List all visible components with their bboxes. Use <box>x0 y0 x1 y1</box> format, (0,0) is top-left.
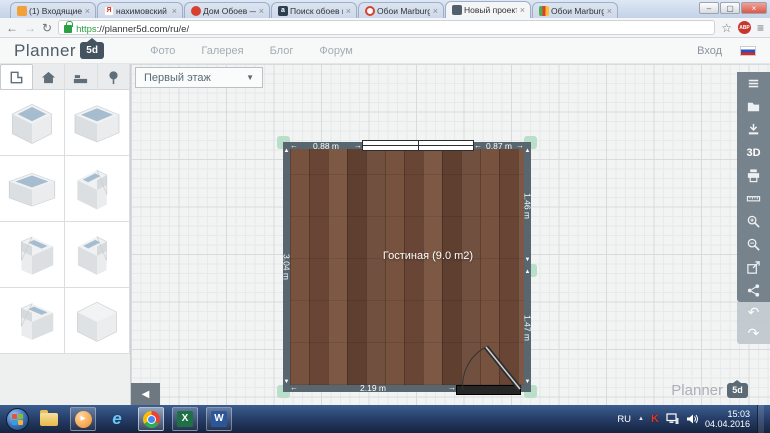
reload-icon[interactable]: ↻ <box>42 19 52 37</box>
minimize-button[interactable]: – <box>699 2 719 14</box>
hamburger-icon <box>746 76 761 91</box>
tab-close-icon[interactable]: × <box>84 6 91 16</box>
dim-value: 2.19 m <box>360 383 386 393</box>
redo-button[interactable]: ↷ <box>737 323 770 344</box>
url-text: ://planner5d.com/ru/e/ <box>97 24 189 35</box>
dim-value: 1.46 m <box>523 193 533 219</box>
planner5d-logo[interactable]: Planner 5d <box>14 41 104 61</box>
pin-favicon-icon <box>191 6 201 16</box>
browser-menu-icon[interactable]: ≡ <box>757 19 764 37</box>
bed-icon <box>72 69 89 86</box>
nav-blog[interactable]: Блог <box>270 45 294 57</box>
door-swing-arc <box>453 342 525 394</box>
right-toolbar: 3D <box>737 72 770 344</box>
l-room-thumb-icon <box>3 231 61 279</box>
dim-arrow-icon: ▼ <box>525 380 531 385</box>
fullscreen-button[interactable] <box>737 256 770 279</box>
url-scheme: https <box>76 24 97 35</box>
planner-favicon-icon <box>452 5 462 15</box>
volume-icon[interactable] <box>686 413 698 425</box>
kaspersky-icon[interactable]: K <box>651 413 659 425</box>
zoom-in-button[interactable] <box>737 210 770 233</box>
nav-photo[interactable]: Фото <box>150 45 175 57</box>
shape-l-room-notch-right[interactable] <box>65 156 130 222</box>
dim-value: 3.04 m <box>282 254 292 280</box>
start-button[interactable] <box>6 408 29 431</box>
chrome-icon <box>143 411 160 428</box>
tab-title: Поиск обоев по кра <box>290 6 343 16</box>
logo-badge-icon: 5d <box>80 42 104 59</box>
tab-close-icon[interactable]: × <box>171 6 178 16</box>
save-button[interactable] <box>737 118 770 141</box>
measure-button[interactable] <box>737 187 770 210</box>
zoom-in-icon <box>746 214 761 229</box>
room-plan-icon <box>8 69 25 86</box>
back-icon[interactable]: ← <box>6 19 18 37</box>
browser-tab-mail[interactable]: (1) Входящие - cheh × <box>10 2 96 18</box>
window-element[interactable] <box>362 140 474 151</box>
rectangle-room-thumb-icon <box>67 100 127 146</box>
tab-construction[interactable] <box>33 64 66 90</box>
language-indicator[interactable]: RU <box>617 414 631 425</box>
watermark-text: Planner <box>671 382 723 399</box>
dimension-top-right: ← 0.87 m → <box>474 141 524 151</box>
browser-tab-planner-active[interactable]: Новый проект - Pla × <box>445 1 531 18</box>
tab-furniture[interactable] <box>65 64 98 90</box>
dim-arrow-icon: ← <box>474 142 482 150</box>
adblock-icon[interactable]: ABP <box>738 21 751 34</box>
taskbar-clock[interactable]: 15:03 04.04.2016 <box>705 409 750 429</box>
dim-arrow-icon: → <box>448 384 456 392</box>
maximize-button[interactable]: ▢ <box>720 2 740 14</box>
tab-close-icon[interactable]: × <box>432 6 439 16</box>
tab-title: Обои Marburg Gloo <box>551 6 604 16</box>
bookmark-star-icon[interactable]: ☆ <box>721 19 732 37</box>
target-favicon-icon <box>365 6 375 16</box>
search-favicon-icon: a <box>278 6 288 16</box>
sidebar-category-tabs <box>0 64 130 90</box>
tray-expand-icon[interactable]: ▲ <box>638 416 644 422</box>
dim-arrow-icon: ← <box>290 384 298 392</box>
taskbar-word[interactable]: W <box>206 407 232 431</box>
l-room-thumb-icon <box>70 164 124 214</box>
windows-taskbar: ▸ e X W RU ▲ K 15:03 04.04.2016 <box>0 405 770 433</box>
taskbar-media-player[interactable]: ▸ <box>70 407 96 431</box>
l-room-thumb-icon <box>71 230 123 280</box>
zoom-out-icon <box>746 237 761 252</box>
wide-room-thumb-icon <box>1 168 63 210</box>
tab-title: (1) Входящие - cheh <box>29 6 82 16</box>
ruler-icon <box>746 191 761 206</box>
cube-thumb-icon <box>70 296 124 346</box>
floor-selector-value: Первый этаж <box>144 72 211 84</box>
site-nav: Фото Галерея Блог Форум <box>150 45 353 57</box>
window-controls: – ▢ × <box>699 2 767 14</box>
dimension-right-top: ▲ 1.46 m ▼ <box>523 149 532 263</box>
forward-icon[interactable]: → <box>24 19 36 37</box>
mail-favicon-icon <box>17 6 27 16</box>
view-3d-button[interactable]: 3D <box>737 141 770 164</box>
l-room-thumb-icon <box>3 298 61 344</box>
show-desktop-button[interactable] <box>757 405 764 433</box>
media-player-icon: ▸ <box>75 411 92 428</box>
clock-time: 15:03 <box>705 409 750 419</box>
zoom-out-button[interactable] <box>737 233 770 256</box>
clock-date: 04.04.2016 <box>705 419 750 429</box>
browser-tab-search[interactable]: a Поиск обоев по кра × <box>271 2 357 18</box>
sidebar <box>0 64 131 405</box>
explorer-icon <box>40 413 58 426</box>
browser-tab-bar: (1) Входящие - cheh × Я нахимовский прос… <box>0 0 770 18</box>
site-header: Planner 5d Фото Галерея Блог Форум Вход <box>0 38 770 64</box>
room-livingroom[interactable]: ← 0.88 m → ← 0.87 m → ← 2.19 m → ▲ 3.04 … <box>283 142 531 392</box>
browser-tab-marburg-child[interactable]: Обои Marburg Chil × <box>358 2 444 18</box>
dim-arrow-icon: ← <box>290 142 298 150</box>
chevron-down-icon: ▼ <box>246 73 254 82</box>
close-button[interactable]: × <box>741 2 767 14</box>
house-icon <box>40 69 57 86</box>
taskbar-internet-explorer[interactable]: e <box>104 407 130 431</box>
tab-title: Новый проект - Pla <box>464 5 517 15</box>
tab-close-icon[interactable]: × <box>345 6 352 16</box>
dim-value: 0.88 m <box>313 141 339 151</box>
taskbar-excel[interactable]: X <box>172 407 198 431</box>
tab-title: Обои Marburg Chil <box>377 6 430 16</box>
excel-icon: X <box>177 411 193 427</box>
print-button[interactable] <box>737 164 770 187</box>
tab-close-icon[interactable]: × <box>258 6 265 16</box>
browser-address-bar: ← → ↻ https://planner5d.com/ru/e/ ☆ ABP … <box>0 18 770 38</box>
nav-forum[interactable]: Форум <box>319 45 352 57</box>
shape-square-room[interactable] <box>0 90 65 156</box>
browser-tab-domoboev[interactable]: Дом Обоев — Мос × <box>184 2 270 18</box>
word-icon: W <box>211 411 227 427</box>
printer-icon <box>746 168 761 183</box>
tab-close-icon[interactable]: × <box>519 5 526 15</box>
shape-l-room-notch-front[interactable] <box>0 222 65 288</box>
url-input[interactable]: https://planner5d.com/ru/e/ <box>58 20 715 35</box>
undo-button[interactable]: ↶ <box>737 302 770 323</box>
shape-l-room-notch-left[interactable] <box>65 222 130 288</box>
download-icon <box>746 122 761 137</box>
dim-arrow-icon: ▲ <box>525 270 531 275</box>
planner5d-watermark: Planner 5d <box>671 382 748 399</box>
tree-icon <box>105 69 122 86</box>
floor-selector-dropdown[interactable]: Первый этаж ▼ <box>135 67 263 88</box>
dim-arrow-icon: ▼ <box>525 258 531 263</box>
logo-text: Planner <box>14 41 76 61</box>
browser-tab-marburg-gloo[interactable]: Обои Marburg Gloo × <box>532 2 618 18</box>
shape-l-room-step[interactable] <box>0 288 65 354</box>
russian-flag-icon[interactable] <box>740 46 756 56</box>
open-external-icon <box>746 260 761 275</box>
folder-icon <box>746 99 761 114</box>
stripes-favicon-icon <box>539 6 549 16</box>
system-tray: RU ▲ K 15:03 04.04.2016 <box>617 405 770 433</box>
dim-arrow-icon: → <box>354 142 362 150</box>
room-shape-palette <box>0 90 130 354</box>
projects-button[interactable] <box>737 95 770 118</box>
nav-gallery[interactable]: Галерея <box>201 45 243 57</box>
watermark-badge-icon: 5d <box>727 383 748 398</box>
dim-arrow-icon: ▼ <box>284 380 290 385</box>
shape-solid-cube[interactable] <box>65 288 130 354</box>
main-area: Первый этаж ▼ ← <box>0 64 770 405</box>
shape-rectangle-room[interactable] <box>65 90 130 156</box>
menu-button[interactable] <box>737 72 770 95</box>
network-icon[interactable] <box>666 413 679 425</box>
dimension-right-bottom: ▲ 1.47 m ▼ <box>523 270 532 385</box>
dim-value: 1.47 m <box>523 315 533 341</box>
tab-room-shapes[interactable] <box>0 64 33 90</box>
yandex-favicon-icon: Я <box>104 6 114 16</box>
windows-logo-icon <box>12 414 23 425</box>
dimension-left: ▲ 3.04 m ▼ <box>282 149 291 385</box>
internet-explorer-icon: e <box>112 409 121 429</box>
dimension-top-left: ← 0.88 m → <box>290 141 362 151</box>
tab-close-icon[interactable]: × <box>606 6 613 16</box>
share-button[interactable] <box>737 279 770 302</box>
room-label: Гостиная (9.0 m2) <box>283 250 531 262</box>
https-lock-icon[interactable] <box>64 25 72 33</box>
browser-tab-yandex[interactable]: Я нахимовский просп × <box>97 2 183 18</box>
dimension-bottom: ← 2.19 m → <box>290 383 456 393</box>
share-icon <box>746 283 761 298</box>
taskbar-explorer[interactable] <box>36 407 62 431</box>
plan-canvas[interactable]: Первый этаж ▼ ← <box>131 64 770 405</box>
tab-title: Дом Обоев — Мос <box>203 6 256 16</box>
dim-arrow-icon: ▲ <box>525 149 531 154</box>
screen: (1) Входящие - cheh × Я нахимовский прос… <box>0 0 770 433</box>
dim-value: 0.87 m <box>486 141 512 151</box>
taskbar-chrome[interactable] <box>138 407 164 431</box>
tab-outdoor[interactable] <box>98 64 131 90</box>
square-room-thumb-icon <box>5 98 59 148</box>
tab-title: нахимовский просп <box>116 6 169 16</box>
dim-arrow-icon: ▲ <box>284 149 290 154</box>
shape-wide-room[interactable] <box>0 156 65 222</box>
3d-label: 3D <box>746 147 760 159</box>
sidebar-collapse-button[interactable]: ◀ <box>131 383 160 405</box>
login-link[interactable]: Вход <box>697 45 722 57</box>
